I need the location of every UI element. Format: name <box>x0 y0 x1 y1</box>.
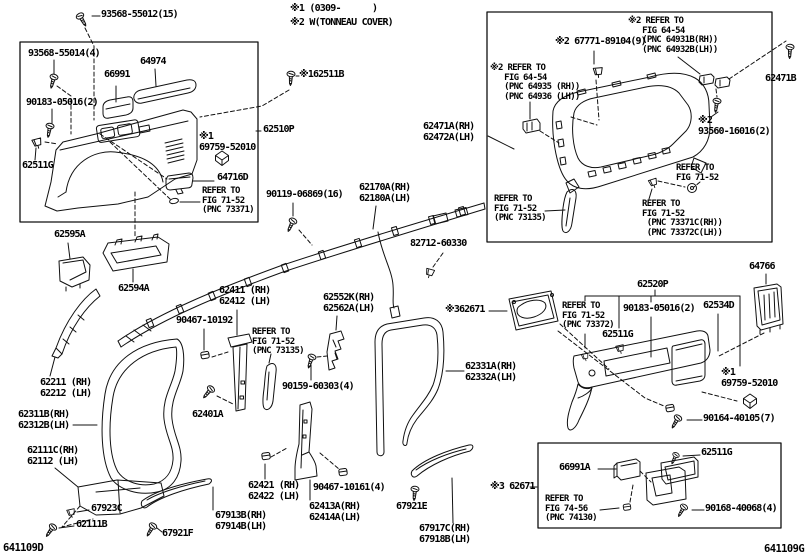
part-label-refer-73135-center: REFER TOFIG 71-52(PNC 73135) <box>252 328 304 357</box>
part-label-90183-05016-right: 90183-05016(2) <box>623 304 695 315</box>
part-label-62534D: 62534D <box>703 301 734 312</box>
part-label-62413A: 62413A(RH)62414A(LH) <box>309 502 360 523</box>
part-label-90183-05016-left: 90183-05016(2) <box>26 98 98 109</box>
part-label-refer-64935: ※2 REFER TO FIG 64-54 (PNC 64935 (RH)) (… <box>490 64 580 102</box>
part-label-90168-40068: 90168-40068(4) <box>705 504 777 515</box>
grommet-circle-7152 <box>688 184 697 193</box>
part-label-62511G-left: 62511G <box>22 161 53 172</box>
trim-sub-panel-62534D <box>672 340 705 386</box>
front-door-opening-seal-62311B <box>102 339 184 493</box>
a-pillar-garnish-62211 <box>52 289 100 358</box>
armrest-garnish-66991 <box>103 97 133 119</box>
part-label-93568-55014: 93568-55014(4) <box>28 49 100 60</box>
part-label-refer-74130: REFER TOFIG 74-56(PNC 74130) <box>545 495 597 524</box>
b-pillar-upper-garnish-62411 <box>228 334 252 411</box>
note-asterisk-1: ※1 (0309- ) <box>290 3 377 14</box>
part-label-62471A: 62471A(RH)62472A(LH) <box>423 122 474 143</box>
part-label-62510P: 62510P <box>263 125 294 136</box>
part-label-refer-73372: REFER TOFIG 71-52(PNC 73372) <box>562 302 614 331</box>
part-label-62411: 62411 (RH)62412 (LH) <box>219 286 270 307</box>
part-label-67913B: 67913B(RH)67914B(LH) <box>215 511 266 532</box>
part-label-90159-60303: 90159-60303(4) <box>282 382 354 393</box>
part-label-67921E: 67921E <box>396 502 427 513</box>
part-label-82712-60330: 82712-60330 <box>410 239 466 250</box>
part-label-66991A: 66991A <box>559 463 590 474</box>
part-label-90467-10161: 90467-10161(4) <box>313 483 385 494</box>
trim-cover-64716D <box>166 173 193 194</box>
leader-lines <box>35 16 766 532</box>
diagram-line-art <box>0 0 811 560</box>
figure-code-right: 641109G <box>764 543 804 555</box>
part-label-64766: 64766 <box>749 262 775 273</box>
part-label-62471B: 62471B <box>765 74 796 85</box>
quarter-upper-garnish-64974 <box>134 80 196 104</box>
part-label-refer-73371: REFER TOFIG 71-52(PNC 73371) <box>202 187 254 216</box>
part-label-62511G-bottom: 62511G <box>701 448 732 459</box>
part-label-64716D: 64716D <box>217 173 248 184</box>
rear-quarter-trim-62520P <box>567 331 710 430</box>
rear-scuff-plate-67917C <box>411 445 473 477</box>
vent-grille-64766 <box>754 284 783 334</box>
part-label-62671-lower: ※3 62671 <box>490 482 535 493</box>
quarter-trim-panel-62510P <box>45 110 197 211</box>
part-label-67917C: 67917C(RH)67918B(LH) <box>419 524 470 545</box>
part-label-62595A: 62595A <box>54 230 85 241</box>
part-label-62111C: 62111C(RH)62112 (LH) <box>27 446 78 467</box>
part-label-62170A: 62170A(RH)62180A(LH) <box>359 183 410 204</box>
part-label-62111B: 62111B <box>76 520 107 531</box>
part-label-refer-7152-r1: REFER TOFIG 71-52 <box>676 164 718 183</box>
pillar-sliver-73135-box <box>562 190 576 233</box>
part-label-62311B: 62311B(RH)62312B(LH) <box>18 410 69 431</box>
part-label-62421: 62421 (RH)62422 (LH) <box>248 481 299 502</box>
part-label-67923C: 67923C <box>91 504 122 515</box>
bracket-64935 <box>523 119 540 133</box>
part-label-90119-06869: 90119-06869(16) <box>266 190 343 201</box>
part-label-67921F: 67921F <box>162 529 193 540</box>
part-label-90467-10192: 90467-10192 <box>176 316 232 327</box>
part-label-66991: 66991 <box>104 70 130 81</box>
part-label-refer-73135-box: REFER TOFIG 71-52(PNC 73135) <box>494 195 546 224</box>
part-label-69759-52010-right: ※169759-52010 <box>721 368 777 389</box>
part-label-93568-55012: 93568-55012(15) <box>101 10 178 21</box>
part-label-62594A: 62594A <box>118 284 149 295</box>
part-label-93560-16016: ※293560-16016(2) <box>698 116 770 137</box>
part-label-62520P: 62520P <box>637 280 668 291</box>
bracket-66991A <box>614 459 640 480</box>
part-label-62671-upper: ※362671 <box>445 305 485 316</box>
part-label-69759-52010-left: ※169759-52010 <box>199 132 255 153</box>
clip-oval-73371 <box>169 198 179 205</box>
rear-door-opening-seal-62331A <box>375 318 444 456</box>
note-asterisk-2: ※2 W(TONNEAU COVER) <box>290 17 393 28</box>
part-label-67771-89104: ※2 67771-89104(9) <box>555 37 646 48</box>
parts-diagram-canvas: ※1 (0309- ) ※2 W(TONNEAU COVER) 641109D … <box>0 0 811 560</box>
bracket-62595A <box>59 257 90 291</box>
bracket-62552K <box>327 331 344 370</box>
part-label-62511G-mid: 62511G <box>602 330 633 341</box>
tray-62594A <box>103 234 169 271</box>
b-pillar-lower-garnish-62413A <box>295 402 317 480</box>
part-label-90164-40105: 90164-40105(7) <box>703 414 775 425</box>
figure-code-left: 641109D <box>3 542 43 554</box>
part-label-62511B: ※162511B <box>299 70 344 81</box>
part-label-62401A: 62401A <box>192 410 223 421</box>
part-label-refer-7152-r2: REFER TOFIG 71-52 (PNC 73371C(RH)) (PNC … <box>642 200 722 238</box>
part-label-62211: 62211 (RH)62212 (LH) <box>40 378 91 399</box>
part-label-62552K: 62552K(RH)62562A(LH) <box>323 293 374 314</box>
separator-board-62671-upper <box>509 291 558 330</box>
part-label-64974: 64974 <box>140 57 166 68</box>
part-label-62331A: 62331A(RH)62332A(LH) <box>465 362 516 383</box>
pillar-sliver-73135-center <box>263 364 276 410</box>
